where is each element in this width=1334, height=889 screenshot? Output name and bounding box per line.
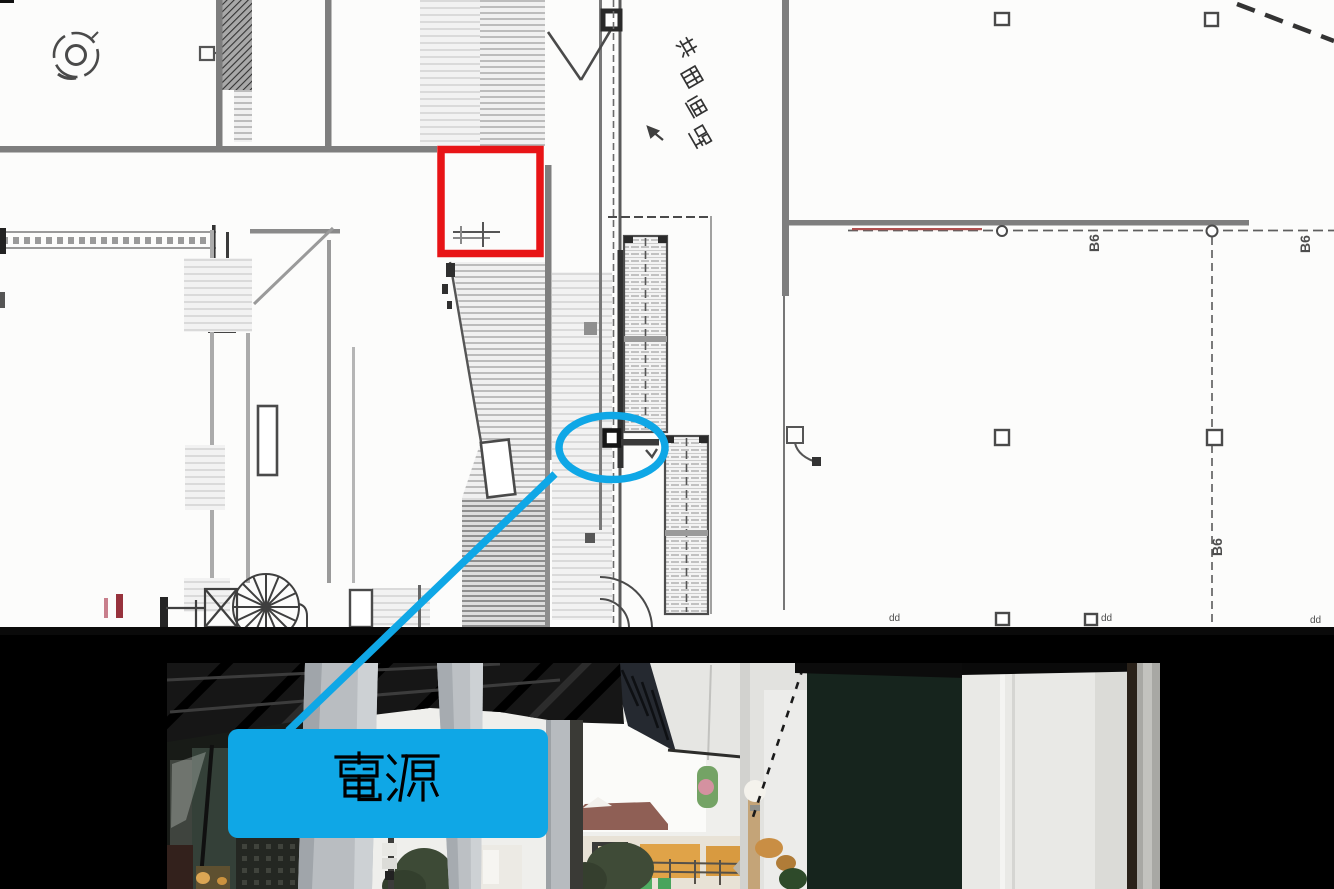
svg-text:B6: B6	[1297, 235, 1313, 253]
svg-text:dd: dd	[1310, 615, 1321, 626]
svg-text:dd: dd	[1101, 613, 1112, 624]
svg-text:B6: B6	[1209, 538, 1225, 556]
svg-text:dd: dd	[889, 613, 900, 624]
svg-text:B6: B6	[1086, 234, 1102, 252]
